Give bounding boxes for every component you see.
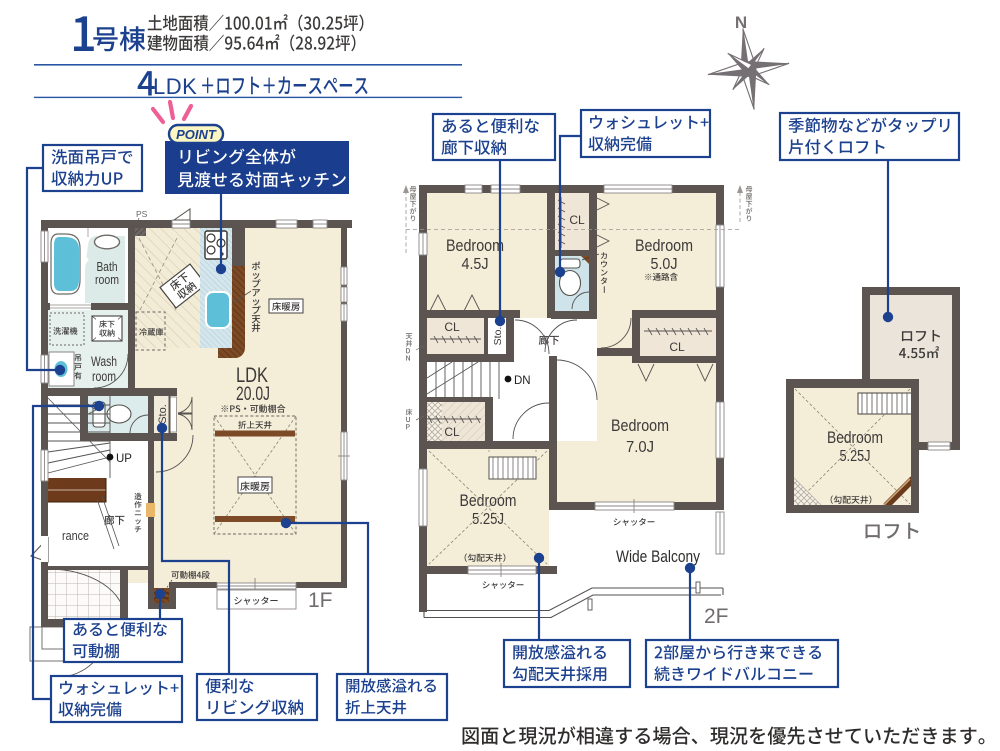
svg-text:POINT: POINT xyxy=(176,127,217,142)
svg-text:Wash: Wash xyxy=(91,354,117,369)
svg-text:CL: CL xyxy=(669,340,685,354)
svg-text:Bedroom: Bedroom xyxy=(827,429,883,447)
svg-text:Bedroom: Bedroom xyxy=(611,416,669,435)
svg-text:2F: 2F xyxy=(704,605,729,628)
svg-text:Sto.: Sto. xyxy=(157,404,169,424)
svg-text:CL: CL xyxy=(444,320,460,334)
svg-text:Wide Balcony: Wide Balcony xyxy=(616,547,700,566)
svg-text:20.0J: 20.0J xyxy=(236,384,270,405)
svg-text:Sto.: Sto. xyxy=(492,327,504,346)
svg-text:5.0J: 5.0J xyxy=(651,256,678,273)
svg-text:room: room xyxy=(92,369,116,384)
svg-text:CL: CL xyxy=(444,425,460,439)
svg-text:5.25J: 5.25J xyxy=(472,511,504,528)
svg-text:Bedroom: Bedroom xyxy=(446,236,504,255)
svg-text:5.25J: 5.25J xyxy=(840,448,871,465)
svg-text:Bedroom: Bedroom xyxy=(460,491,517,510)
svg-text:Bedroom: Bedroom xyxy=(635,236,693,255)
svg-text:N: N xyxy=(735,13,747,32)
svg-text:7.0J: 7.0J xyxy=(626,439,654,456)
svg-text:room: room xyxy=(95,273,119,287)
svg-text:CL: CL xyxy=(569,213,585,227)
svg-text:4.5J: 4.5J xyxy=(462,256,489,273)
svg-text:LDK: LDK xyxy=(153,74,197,99)
svg-text:DN: DN xyxy=(514,375,531,387)
svg-text:rance: rance xyxy=(62,529,89,543)
svg-text:UP: UP xyxy=(116,453,132,465)
svg-text:Bath: Bath xyxy=(97,260,118,274)
svg-text:PS: PS xyxy=(136,209,148,219)
svg-text:1F: 1F xyxy=(308,589,333,612)
